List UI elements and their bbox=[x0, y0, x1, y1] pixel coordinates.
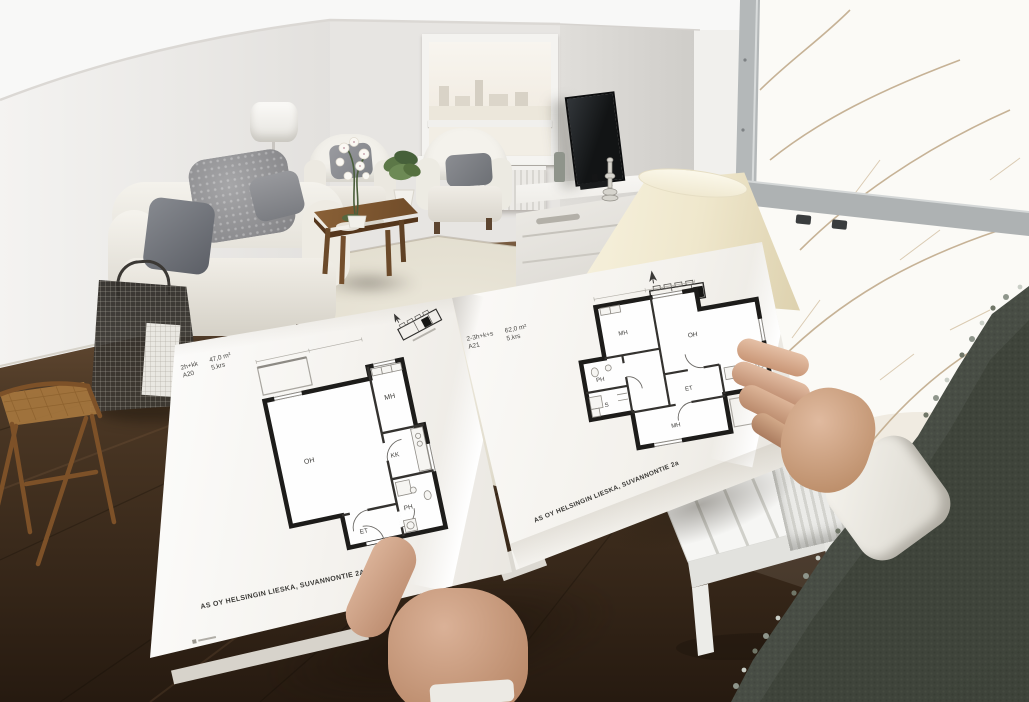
publisher-logo bbox=[192, 635, 216, 644]
unit-header: 2h+kk A20 47,0 m² 5.krs bbox=[180, 352, 234, 381]
left-hand bbox=[344, 528, 539, 702]
logo-mark bbox=[192, 639, 197, 644]
living-room-photo: 2-3h+k+s A21 62,0 m² 5.krs bbox=[0, 0, 1029, 702]
right-hand bbox=[730, 330, 875, 495]
footer-address: AS OY HELSINGIN LIESKA, SUVANNONTIE 2A bbox=[200, 569, 366, 611]
logo-bar bbox=[198, 636, 216, 642]
room-label-sauna: S bbox=[604, 402, 609, 409]
